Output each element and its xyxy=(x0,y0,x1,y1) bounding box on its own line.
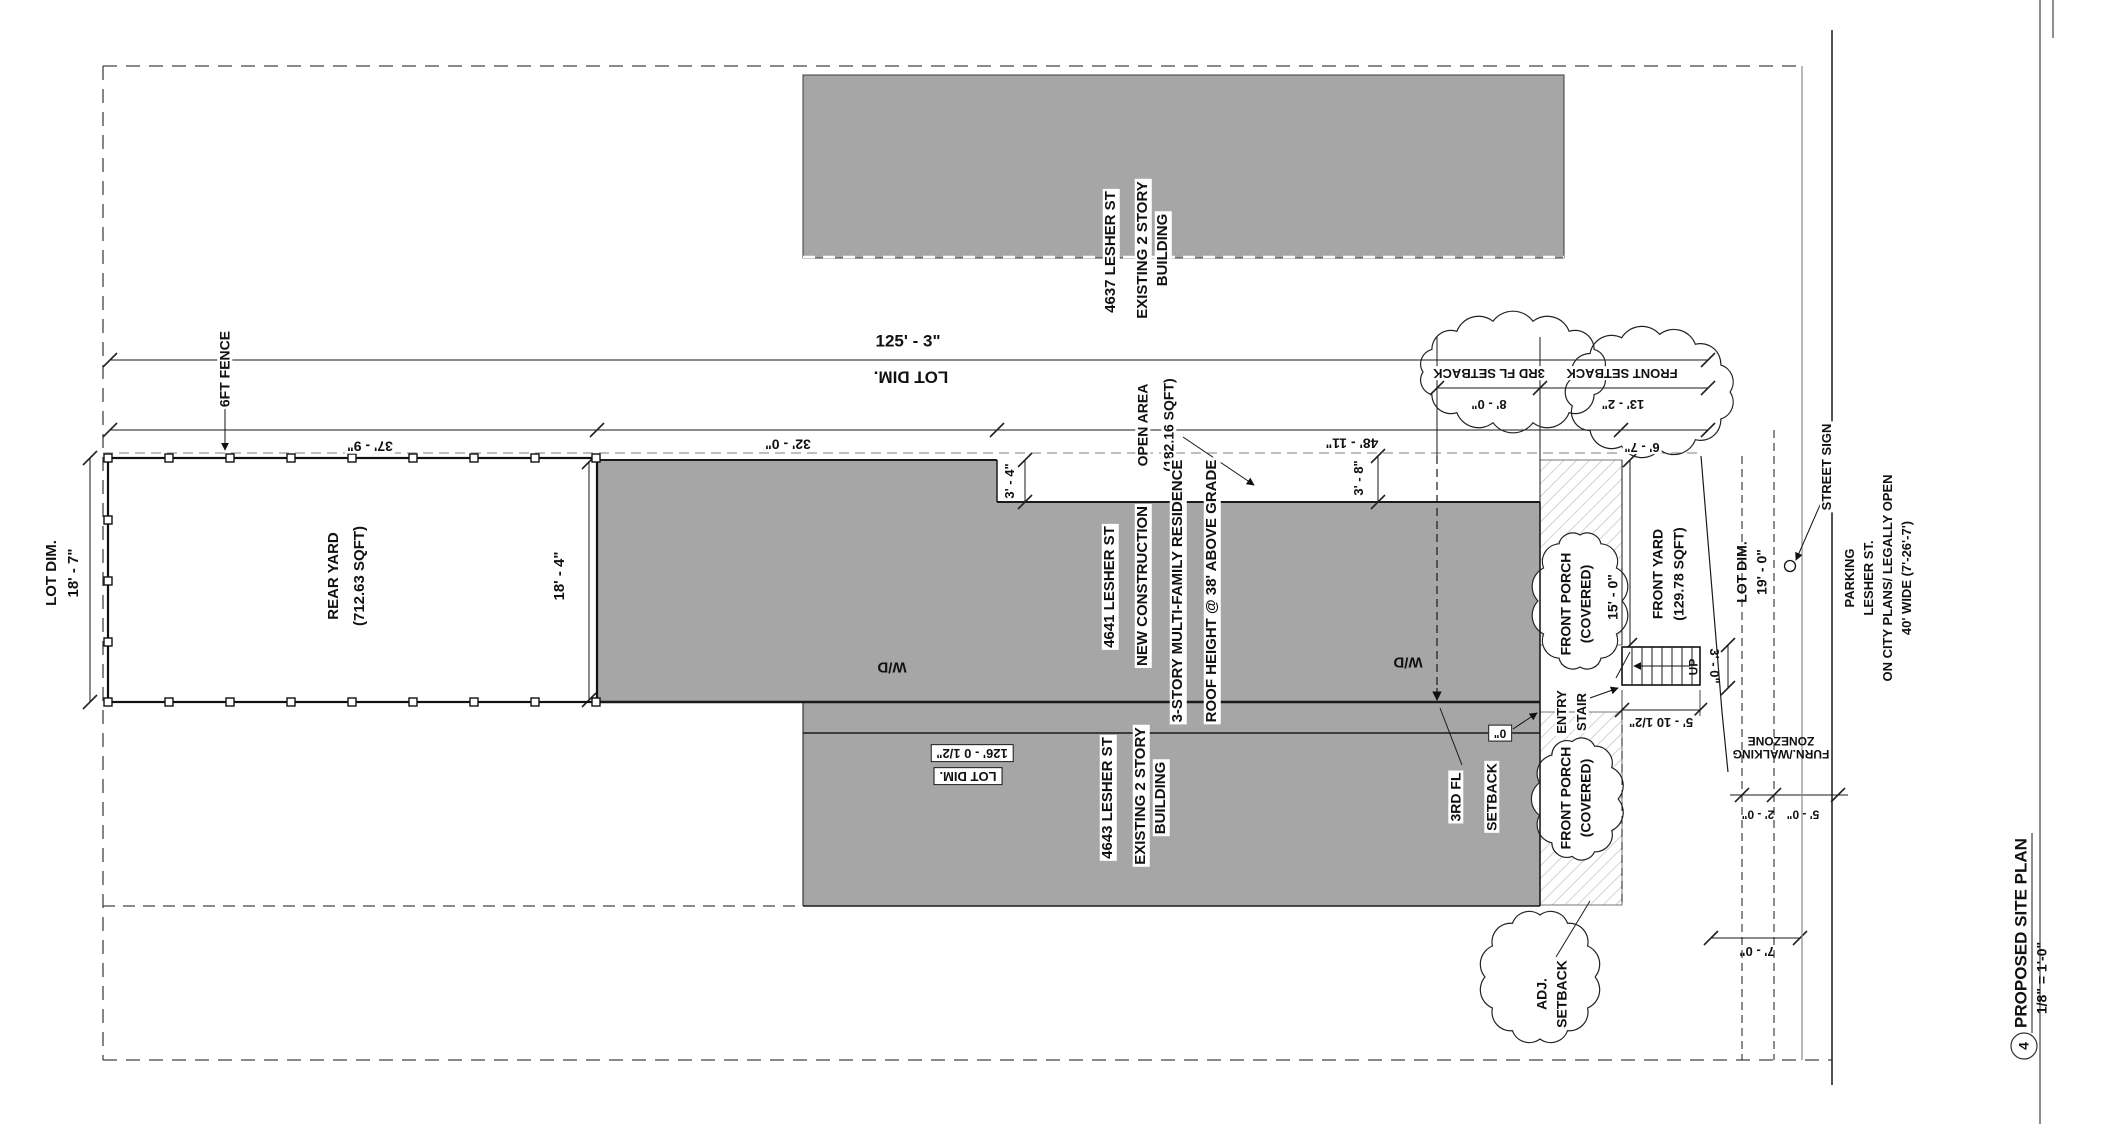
dim-rear-yard-width: 37' - 9" xyxy=(345,438,395,453)
lot-dim-rear-value: 18' - 7" xyxy=(66,546,83,599)
building-new-line4: ROOF HEIGHT @ 38' ABOVE GRADE xyxy=(1204,458,1221,725)
building-bottom-type: EXISTING 2 STORY xyxy=(1133,725,1150,867)
dim-lot-length-bottom: 126' - 0 1/2" xyxy=(930,744,1013,762)
building-new-address: 4641 LESHER ST xyxy=(1102,524,1119,650)
dim-side-yard: 3' - 8" xyxy=(1352,458,1366,497)
dim-stair-length: 5' - 10 1/2" xyxy=(1627,715,1695,729)
front-setback-label: FRONT SETBACK xyxy=(1564,366,1679,380)
entry-stair-label1: ENTRY xyxy=(1555,688,1569,736)
parking-label1: PARKING xyxy=(1843,549,1857,608)
dim-lot-length-top: 125' - 3" xyxy=(873,333,942,352)
sheet-number: 4 xyxy=(2016,1042,2031,1050)
adj-setback-label2: SETBACK xyxy=(1554,960,1569,1028)
third-fl-setback-dim: 8' - 0" xyxy=(1469,397,1508,411)
third-fl-setback-lower2: SETBACK xyxy=(1484,761,1499,833)
building-top-address: 4637 LESHER ST xyxy=(1103,189,1120,315)
dim-zero-setback: 0" xyxy=(1488,724,1512,741)
washer-dryer-right: W/D xyxy=(1393,653,1422,670)
dim-notch: 3' - 4" xyxy=(1003,461,1017,500)
lot-dim-front-label: LOT DIM. xyxy=(1734,541,1749,602)
dim-mid-width: 32' - 0" xyxy=(763,436,813,451)
street-sign-label: STREET SIGN xyxy=(1820,422,1834,513)
dim-zone-7: 7' - 0" xyxy=(1739,944,1774,958)
dim-lot-dim-top: LOT DIM. xyxy=(872,367,951,386)
fence-label: 6FT FENCE xyxy=(217,329,232,409)
building-bottom-type2: BUILDING xyxy=(1153,760,1170,837)
dim-stair-width: 3' - 0" xyxy=(1707,648,1721,683)
building-new-line2: NEW CONSTRUCTION xyxy=(1135,504,1152,668)
front-porch-lower-sub: (COVERED) xyxy=(1578,757,1593,840)
site-plan-linework xyxy=(0,0,2124,1124)
lot-dim-front-value: 19' - 0" xyxy=(1754,549,1769,595)
dim-front-15: 15' - 0" xyxy=(1605,574,1620,620)
washer-dryer-left: W/D xyxy=(877,658,906,675)
front-porch-upper-sub: (COVERED) xyxy=(1578,563,1593,646)
adj-setback-label1: ADJ. xyxy=(1534,978,1549,1010)
walking-zone-label: FURN./WALKING ZONEZONE xyxy=(1733,734,1830,760)
entry-stair-label2: STAIR xyxy=(1575,691,1589,733)
stair-up-label: UP xyxy=(1687,659,1700,676)
front-setback-dim: 13' - 2" xyxy=(1600,397,1647,411)
open-area-label: OPEN AREA xyxy=(1135,382,1150,469)
lot-dim-rear-label: LOT DIM. xyxy=(44,538,61,608)
site-plan-sheet: 125' - 3" LOT DIM. 4637 LESHER ST EXISTI… xyxy=(0,0,2124,1124)
sheet-scale: 1/8" = 1'-0" xyxy=(2034,942,2049,1014)
front-porch-lower-label: FRONT PORCH xyxy=(1558,745,1573,852)
rear-yard-label: REAR YARD xyxy=(326,530,343,622)
dim-front-width: 48' - 11" xyxy=(1324,435,1381,450)
dim-zone-2: 2' - 0" xyxy=(1742,807,1775,820)
front-yard-area: (129.78 SQFT) xyxy=(1671,525,1686,622)
parking-label2: LESHER ST. xyxy=(1862,540,1876,615)
third-fl-setback-label: 3RD FL SETBACK xyxy=(1431,366,1547,380)
walking-zone-line1: FURN./WALKING xyxy=(1733,747,1830,760)
parking-label4: 40' WIDE (7'-26'-7') xyxy=(1900,521,1914,635)
dim-front-yard-width: 6' - 7" xyxy=(1622,440,1661,454)
building-top-type2: BUILDING xyxy=(1155,212,1172,289)
rear-yard-area: (712.63 SQFT) xyxy=(352,524,369,628)
third-fl-setback-lower1: 3RD FL xyxy=(1448,771,1463,824)
dim-lot-dim-bottom: LOT DIM. xyxy=(933,767,1002,785)
walking-zone-line2: ZONEZONE xyxy=(1733,734,1830,747)
dim-rear-depth: 18' - 4" xyxy=(552,549,569,602)
building-new-line3: 3-STORY MULTI-FAMILY RESIDENCE xyxy=(1170,458,1187,725)
parking-label3: ON CITY PLANS/ LEGALLY OPEN xyxy=(1881,474,1895,681)
building-top-type: EXISTING 2 STORY xyxy=(1135,179,1152,321)
front-porch-upper-label: FRONT PORCH xyxy=(1558,551,1573,658)
dim-zone-5: 5' - 0" xyxy=(1787,807,1820,820)
building-bottom-address: 4643 LESHER ST xyxy=(1100,735,1117,861)
front-yard-label: FRONT YARD xyxy=(1650,527,1665,621)
sheet-title: PROPOSED SITE PLAN xyxy=(2013,838,2032,1028)
